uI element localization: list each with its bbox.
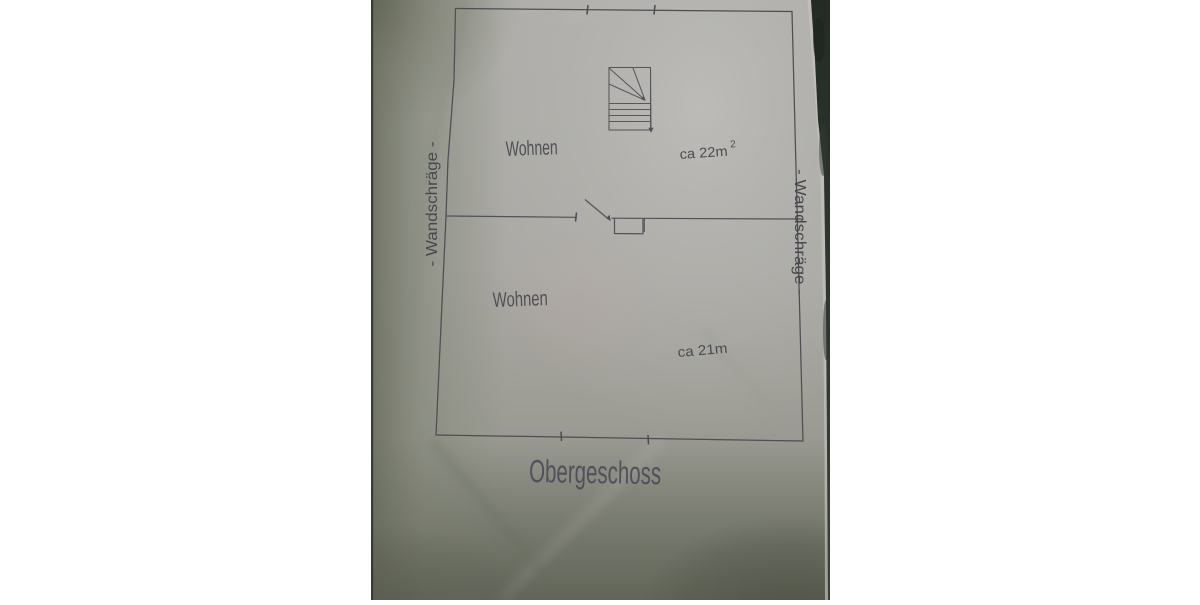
svg-text:Obergeschoss: Obergeschoss bbox=[529, 453, 662, 491]
svg-text:- Wandschräge -: - Wandschräge - bbox=[791, 169, 808, 295]
svg-text:Wohnen: Wohnen bbox=[492, 287, 548, 312]
svg-text:Wohnen: Wohnen bbox=[505, 136, 558, 161]
svg-text:- Wandschräge -: - Wandschräge - bbox=[424, 142, 441, 267]
svg-text:ca 22m: ca 22m bbox=[679, 143, 728, 162]
